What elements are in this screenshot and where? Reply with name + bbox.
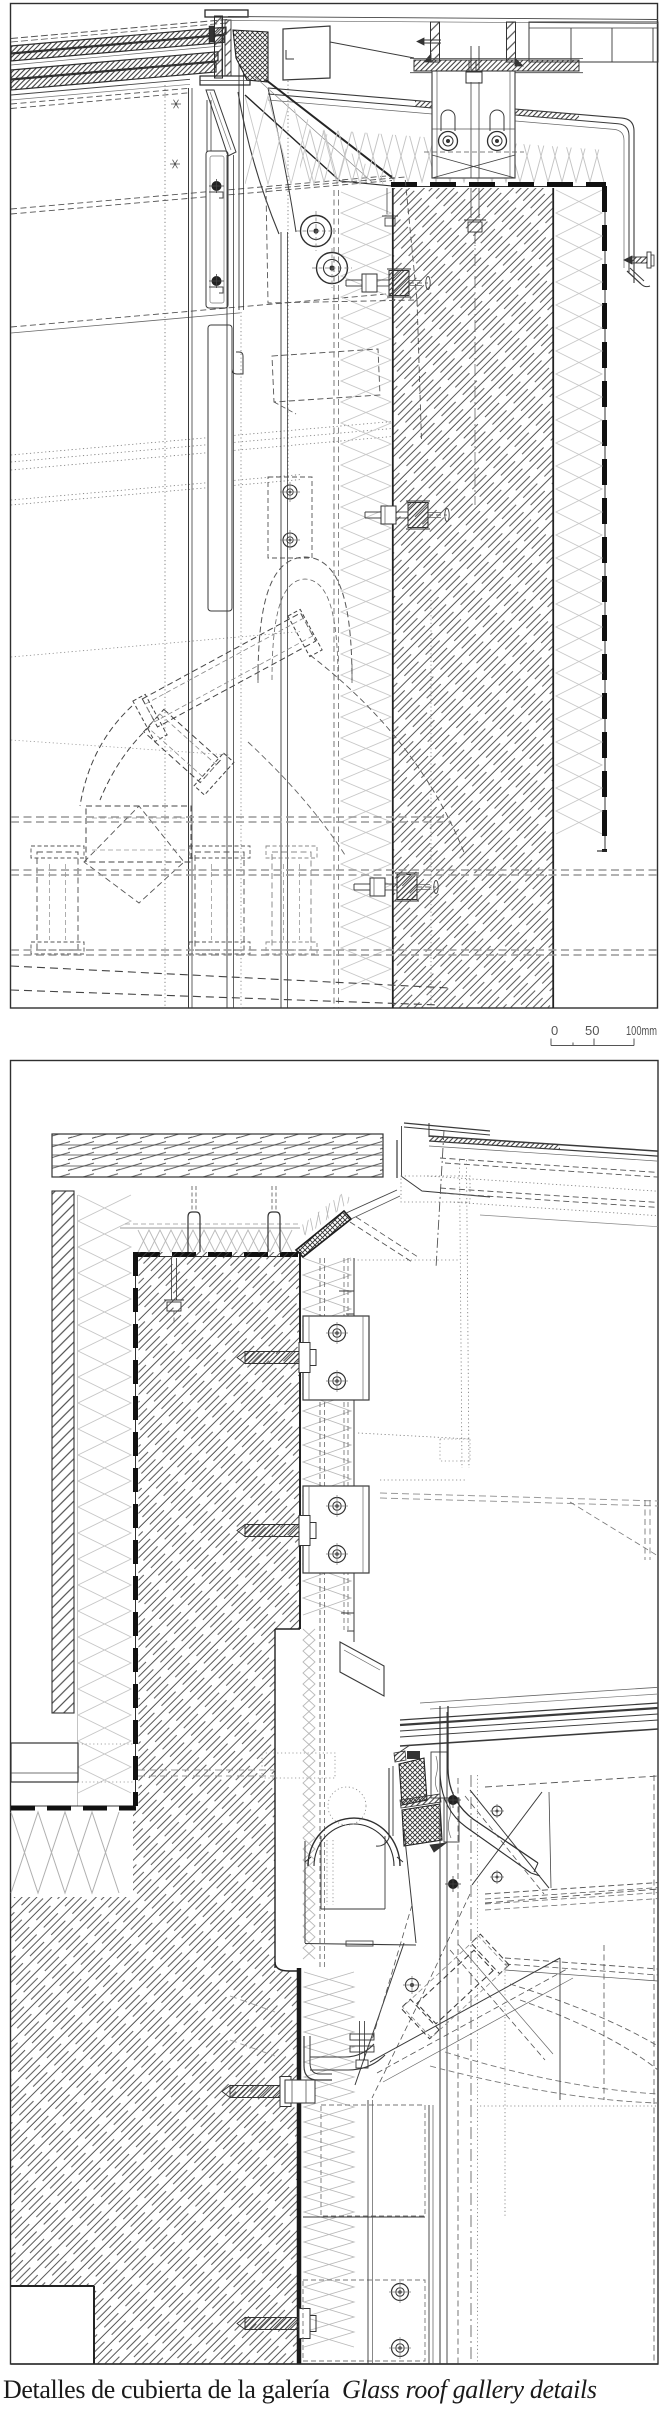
svg-text:0: 0	[551, 1023, 558, 1038]
svg-text:Glass roof gallery details: Glass roof gallery details	[342, 2375, 597, 2404]
svg-text:100mm: 100mm	[626, 1023, 657, 1038]
svg-text:Detalles de cubierta de la gal: Detalles de cubierta de la galería	[3, 2375, 330, 2404]
svg-text:50: 50	[585, 1023, 599, 1038]
